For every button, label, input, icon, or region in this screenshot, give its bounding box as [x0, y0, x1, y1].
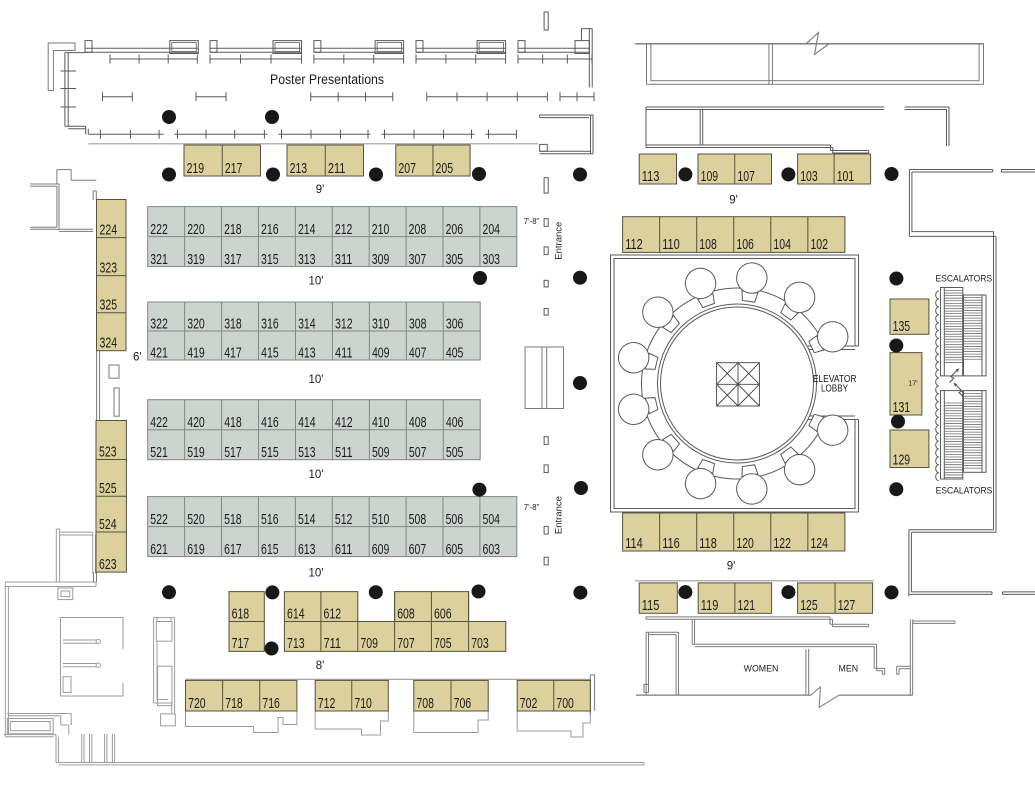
svg-text:10': 10' [309, 469, 324, 481]
svg-text:405: 405 [446, 345, 464, 361]
svg-text:313: 313 [298, 252, 316, 268]
svg-text:718: 718 [225, 696, 243, 712]
svg-text:9': 9' [727, 561, 736, 573]
svg-text:208: 208 [409, 222, 427, 238]
svg-text:213: 213 [290, 161, 308, 177]
svg-text:611: 611 [335, 542, 353, 558]
svg-text:615: 615 [261, 542, 279, 558]
svg-text:518: 518 [224, 512, 242, 528]
svg-text:406: 406 [446, 415, 464, 431]
svg-text:204: 204 [482, 222, 500, 238]
svg-text:418: 418 [224, 415, 242, 431]
svg-text:412: 412 [335, 415, 353, 431]
svg-text:507: 507 [409, 445, 427, 461]
svg-text:417: 417 [224, 345, 242, 361]
svg-text:509: 509 [372, 445, 390, 461]
svg-text:506: 506 [446, 512, 464, 528]
svg-text:717: 717 [232, 636, 250, 652]
svg-text:520: 520 [187, 512, 205, 528]
svg-text:422: 422 [150, 415, 168, 431]
svg-text:324: 324 [100, 336, 118, 352]
svg-text:712: 712 [318, 696, 336, 712]
svg-text:409: 409 [372, 345, 390, 361]
svg-text:325: 325 [100, 298, 118, 314]
svg-text:MEN: MEN [839, 664, 859, 674]
svg-text:118: 118 [699, 536, 717, 552]
svg-text:619: 619 [187, 542, 205, 558]
svg-text:108: 108 [699, 237, 717, 253]
svg-text:210: 210 [372, 222, 390, 238]
svg-text:414: 414 [298, 415, 316, 431]
svg-text:307: 307 [409, 252, 427, 268]
svg-text:109: 109 [701, 169, 719, 185]
svg-text:ESCALATORS: ESCALATORS [936, 485, 993, 496]
svg-text:Entrance: Entrance [554, 222, 565, 260]
svg-text:Entrance: Entrance [554, 496, 565, 534]
svg-text:525: 525 [99, 481, 117, 497]
svg-text:607: 607 [409, 542, 427, 558]
svg-text:124: 124 [810, 536, 828, 552]
svg-text:411: 411 [335, 345, 353, 361]
svg-text:116: 116 [662, 536, 680, 552]
svg-text:504: 504 [482, 512, 500, 528]
svg-text:129: 129 [893, 452, 911, 468]
svg-text:314: 314 [298, 316, 316, 332]
svg-text:LOBBY: LOBBY [821, 384, 848, 395]
svg-text:103: 103 [800, 169, 818, 185]
svg-text:523: 523 [99, 444, 117, 460]
svg-text:106: 106 [736, 237, 754, 253]
svg-text:510: 510 [372, 512, 390, 528]
svg-text:131: 131 [893, 400, 911, 416]
svg-text:323: 323 [100, 260, 118, 276]
svg-text:609: 609 [372, 542, 390, 558]
svg-text:521: 521 [150, 445, 168, 461]
svg-text:413: 413 [298, 345, 316, 361]
svg-text:524: 524 [99, 517, 117, 533]
svg-text:703: 703 [471, 636, 489, 652]
svg-text:207: 207 [398, 161, 416, 177]
svg-text:716: 716 [262, 696, 280, 712]
svg-text:310: 310 [372, 316, 390, 332]
svg-text:707: 707 [397, 636, 415, 652]
svg-text:709: 709 [360, 636, 378, 652]
svg-text:309: 309 [372, 252, 390, 268]
svg-text:113: 113 [642, 169, 660, 185]
svg-text:206: 206 [446, 222, 464, 238]
svg-text:319: 319 [187, 252, 205, 268]
svg-text:110: 110 [662, 237, 680, 253]
svg-text:511: 511 [335, 445, 353, 461]
svg-text:216: 216 [261, 222, 279, 238]
svg-text:420: 420 [187, 415, 205, 431]
svg-text:522: 522 [150, 512, 168, 528]
svg-text:407: 407 [409, 345, 427, 361]
svg-text:120: 120 [736, 536, 754, 552]
svg-text:217: 217 [225, 161, 243, 177]
svg-text:311: 311 [335, 252, 353, 268]
svg-text:9': 9' [729, 195, 738, 207]
svg-text:505: 505 [446, 445, 464, 461]
svg-text:621: 621 [150, 542, 168, 558]
svg-text:312: 312 [335, 316, 353, 332]
svg-text:720: 720 [188, 696, 206, 712]
svg-text:517: 517 [224, 445, 242, 461]
svg-text:10': 10' [309, 374, 324, 386]
svg-text:115: 115 [642, 598, 660, 614]
svg-text:608: 608 [397, 606, 415, 622]
svg-text:219: 219 [187, 161, 205, 177]
svg-text:614: 614 [287, 606, 305, 622]
svg-text:515: 515 [261, 445, 279, 461]
svg-text:516: 516 [261, 512, 279, 528]
svg-text:421: 421 [150, 345, 168, 361]
svg-text:218: 218 [224, 222, 242, 238]
svg-text:512: 512 [335, 512, 353, 528]
svg-text:224: 224 [100, 222, 118, 238]
svg-text:416: 416 [261, 415, 279, 431]
svg-text:9': 9' [316, 184, 325, 196]
svg-text:706: 706 [454, 696, 472, 712]
svg-text:17': 17' [908, 378, 918, 387]
svg-text:320: 320 [187, 316, 205, 332]
svg-text:122: 122 [773, 536, 791, 552]
svg-text:623: 623 [99, 557, 117, 573]
svg-text:705: 705 [434, 636, 452, 652]
svg-text:321: 321 [150, 252, 168, 268]
svg-text:220: 220 [187, 222, 205, 238]
svg-text:114: 114 [625, 536, 643, 552]
svg-text:112: 112 [625, 237, 643, 253]
svg-text:102: 102 [810, 237, 828, 253]
svg-text:606: 606 [434, 606, 452, 622]
svg-text:514: 514 [298, 512, 316, 528]
svg-text:711: 711 [324, 636, 342, 652]
svg-text:10': 10' [309, 568, 324, 580]
svg-text:408: 408 [409, 415, 427, 431]
svg-text:ESCALATORS: ESCALATORS [935, 274, 992, 285]
svg-text:322: 322 [150, 316, 168, 332]
svg-text:7'-8": 7'-8" [524, 217, 540, 226]
svg-text:708: 708 [416, 696, 434, 712]
svg-text:101: 101 [837, 169, 855, 185]
svg-text:Poster Presentations: Poster Presentations [270, 72, 384, 87]
svg-text:618: 618 [232, 606, 250, 622]
svg-text:317: 317 [224, 252, 242, 268]
svg-text:415: 415 [261, 345, 279, 361]
svg-text:305: 305 [446, 252, 464, 268]
svg-text:315: 315 [261, 252, 279, 268]
svg-text:205: 205 [436, 161, 454, 177]
svg-text:605: 605 [446, 542, 464, 558]
svg-text:318: 318 [224, 316, 242, 332]
svg-text:7'-8": 7'-8" [524, 503, 540, 512]
svg-text:119: 119 [701, 598, 719, 614]
svg-text:617: 617 [224, 542, 242, 558]
svg-text:222: 222 [150, 222, 168, 238]
svg-text:508: 508 [409, 512, 427, 528]
svg-text:10': 10' [309, 275, 324, 287]
svg-text:104: 104 [773, 237, 791, 253]
svg-text:713: 713 [287, 636, 305, 652]
svg-text:8': 8' [316, 660, 325, 672]
svg-text:308: 308 [409, 316, 427, 332]
svg-text:410: 410 [372, 415, 390, 431]
svg-text:702: 702 [520, 696, 538, 712]
svg-text:613: 613 [298, 542, 316, 558]
svg-text:212: 212 [335, 222, 353, 238]
svg-text:303: 303 [482, 252, 500, 268]
svg-text:700: 700 [556, 696, 574, 712]
svg-text:306: 306 [446, 316, 464, 332]
svg-text:214: 214 [298, 222, 316, 238]
svg-text:6': 6' [133, 352, 142, 364]
svg-text:603: 603 [482, 542, 500, 558]
svg-text:612: 612 [324, 606, 342, 622]
svg-text:WOMEN: WOMEN [744, 664, 779, 674]
svg-text:211: 211 [328, 161, 346, 177]
svg-text:121: 121 [738, 598, 756, 614]
svg-text:135: 135 [893, 319, 911, 335]
svg-text:710: 710 [354, 696, 372, 712]
svg-text:419: 419 [187, 345, 205, 361]
svg-text:513: 513 [298, 445, 316, 461]
svg-text:125: 125 [800, 598, 818, 614]
svg-text:127: 127 [838, 598, 856, 614]
svg-text:519: 519 [187, 445, 205, 461]
svg-text:316: 316 [261, 316, 279, 332]
svg-text:107: 107 [737, 169, 755, 185]
